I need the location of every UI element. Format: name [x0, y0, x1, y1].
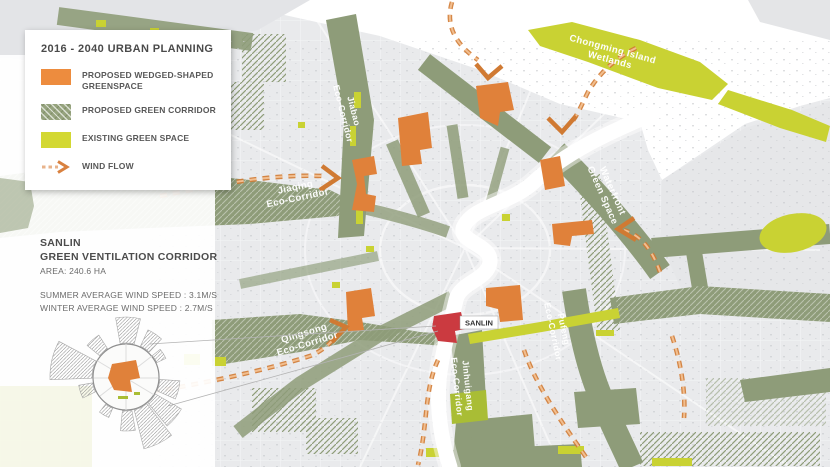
info-area-value: AREA: 240.6 HA: [40, 266, 235, 276]
legend-label-existing-green: EXISTING GREEN SPACE: [82, 131, 189, 144]
pale-field-sw: [0, 386, 92, 467]
legend-label-wind-flow: WIND FLOW: [82, 159, 134, 172]
legend-card: 2016 - 2040 URBAN PLANNING PROPOSED WEDG…: [25, 30, 231, 190]
legend-label-green-corridor: PROPOSED GREEN CORRIDOR: [82, 103, 216, 116]
hatch-se2: [706, 378, 826, 426]
chartreuse-swatch: [41, 132, 71, 148]
info-title-sanlin: SANLIN: [40, 237, 235, 251]
legend-item-wind-flow: WIND FLOW: [41, 159, 217, 175]
hatch-nw1: [242, 34, 286, 82]
legend-item-wedged-greenspace: PROPOSED WEDGED-SHAPED GREENSPACE: [41, 68, 217, 92]
sanlin-marker: SANLIN: [460, 316, 498, 329]
sanlin-info-block: SANLIN GREEN VENTILATION CORRIDOR AREA: …: [40, 237, 235, 316]
pufeng-block: [574, 388, 640, 428]
green-hatch-swatch: [41, 104, 71, 120]
hatch-sw2: [306, 418, 358, 454]
legend-item-existing-green: EXISTING GREEN SPACE: [41, 131, 217, 148]
info-winter-wind: WINTER AVERAGE WIND SPEED : 2.7M/S: [40, 302, 235, 315]
legend-item-green-corridor: PROPOSED GREEN CORRIDOR: [41, 103, 217, 120]
info-wind-speeds: SUMMER AVERAGE WIND SPEED : 3.1M/S WINTE…: [40, 289, 235, 315]
legend-label-wedged-greenspace: PROPOSED WEDGED-SHAPED GREENSPACE: [82, 68, 217, 92]
orange-swatch: [41, 69, 71, 85]
legend-title: 2016 - 2040 URBAN PLANNING: [41, 43, 217, 55]
info-title-corridor: GREEN VENTILATION CORRIDOR: [40, 251, 235, 265]
wind-flow-icon: [41, 159, 71, 175]
urban-planning-map-page: Jiaqing Eco-Corridor Jiabao Eco-Corridor…: [0, 0, 830, 467]
info-summer-wind: SUMMER AVERAGE WIND SPEED : 3.1M/S: [40, 289, 235, 302]
sanlin-marker-label: SANLIN: [465, 319, 493, 328]
